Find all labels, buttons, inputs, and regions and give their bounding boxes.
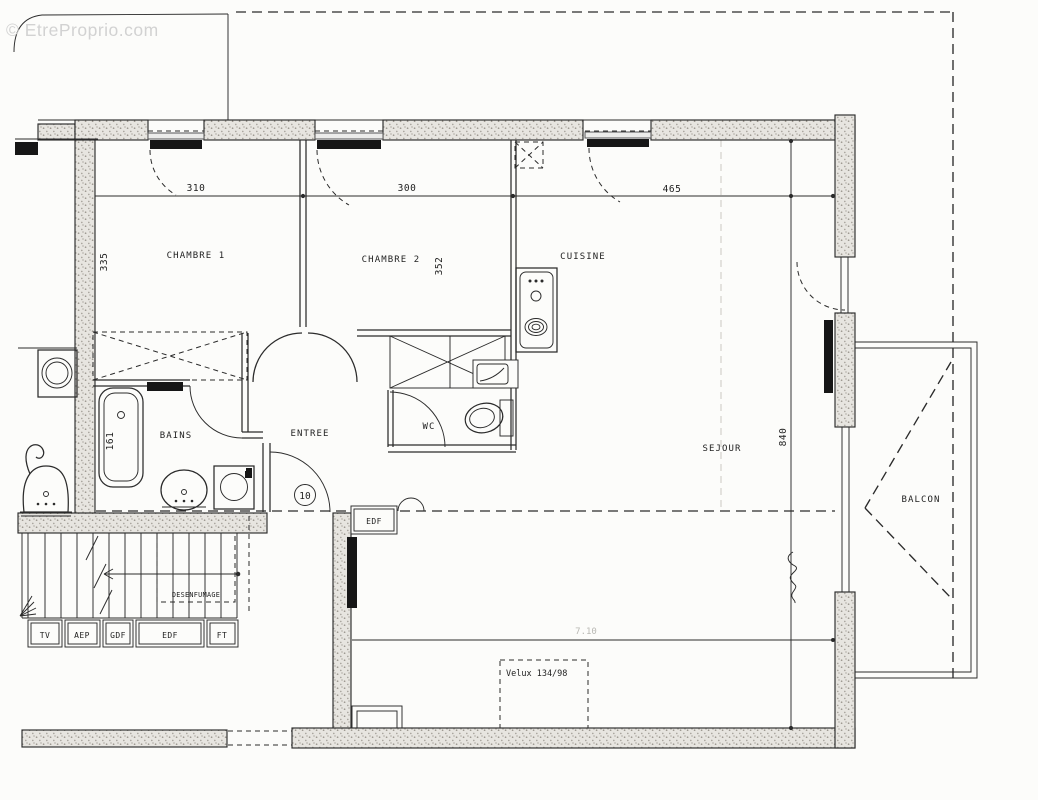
balcony-slope-marks (865, 362, 951, 598)
utility-box-gdf: GDF (103, 620, 133, 647)
stairs-break-marks (86, 536, 112, 614)
window-chambre2 (315, 133, 383, 139)
washbasin-bains (161, 470, 207, 510)
window-swing-chambre2 (317, 150, 349, 205)
hall-arch-right (308, 333, 357, 382)
balcon-label: BALCON (901, 495, 940, 505)
velux-label: Velux 134/98 (506, 669, 567, 679)
velux-zone: Velux 134/98 (500, 660, 588, 728)
utility-box-aep: AEP (65, 620, 100, 647)
door-entrance (270, 452, 330, 512)
cuisine-partition (511, 140, 516, 450)
edf-meter-label: EDF (366, 517, 382, 526)
dim-chambre1-width: 310 (187, 183, 206, 194)
stairs-direction-arrow (104, 569, 240, 579)
bottom-wall (292, 728, 855, 748)
low-window (352, 706, 402, 728)
dimension-annotations: 310 300 465 335 352 161 840 (95, 139, 835, 730)
washing-machine-bains (214, 466, 254, 509)
dim-chambre1-depth: 335 (99, 253, 110, 272)
interior-walls (93, 140, 516, 608)
window-chambre1 (148, 133, 204, 139)
window-cuisine (585, 132, 651, 138)
radiator-sejour (347, 537, 357, 608)
window-swing-cuisine (589, 148, 620, 202)
dim-sejour-width: 465 (663, 184, 682, 195)
dim-sejour-depth: 840 (778, 428, 789, 447)
french-window (841, 257, 848, 313)
wc-hand-basin (473, 360, 518, 388)
edf-meter-box: EDF (351, 506, 397, 534)
label-sejour: SEJOUR (702, 444, 741, 454)
washing-machine-exterior (18, 348, 77, 397)
desenfumage-label: DESENFUMAGE (172, 591, 220, 599)
exterior-cabinet (15, 142, 38, 155)
balcony-glazing (842, 427, 849, 592)
label-bains: BAINS (160, 431, 193, 441)
label-wc: WC (422, 422, 435, 432)
closets (93, 142, 543, 388)
utility-box-label: FT (217, 631, 227, 640)
toilet (462, 399, 513, 436)
label-entree: ENTREE (290, 429, 329, 439)
utility-box-label: TV (40, 631, 50, 640)
utility-box-edf: EDF (136, 620, 204, 647)
window-swing-chambre1 (150, 150, 176, 195)
door-number-badge: 10 (295, 485, 316, 506)
door-wc (390, 392, 445, 447)
floor-plan-drawing: 7.10 (0, 0, 1038, 800)
label-cuisine: CUISINE (560, 252, 606, 262)
label-chambre2: CHAMBRE 2 (362, 255, 421, 265)
entry-door-jamb (263, 443, 270, 512)
dim-bath-length: 161 (105, 432, 116, 451)
dim-chambre2-depth: 352 (434, 257, 445, 276)
balcony: BALCON (855, 342, 977, 678)
dim-lower-width: 7.10 (575, 627, 597, 637)
utility-box-ft: FT (207, 620, 238, 647)
lower-section-line: 7.10 (352, 627, 835, 642)
lower-annotations: EDF Velux 134/98 (351, 506, 588, 728)
kitchen-sink (516, 268, 557, 352)
cuisine-duct (515, 142, 543, 168)
utility-boxes: TV AEP GDF EDF FT (28, 620, 238, 647)
handwritten-correction (788, 552, 796, 603)
utility-box-label: GDF (110, 631, 126, 640)
smoke-vent-zone: DESENFUMAGE (157, 533, 235, 602)
floor-plan-page: 7.10 (0, 0, 1038, 800)
door-sejour-bump (398, 498, 424, 511)
utility-box-tv: TV (28, 620, 62, 647)
open-door-leaf (824, 320, 833, 393)
closet-chambre1 (93, 332, 247, 380)
door-bains (190, 386, 242, 438)
label-chambre1: CHAMBRE 1 (167, 251, 226, 261)
hall-arch-left (253, 333, 302, 382)
utility-box-label: EDF (162, 631, 178, 640)
sink-exterior (20, 445, 72, 516)
left-wall (75, 140, 95, 515)
right-wall-upper (835, 115, 855, 257)
dim-chambre2-width: 300 (398, 183, 417, 194)
watermark: © EtreProprio.com (6, 20, 159, 41)
door-number-label: 10 (299, 491, 311, 502)
radiator-bains (147, 382, 183, 391)
utility-box-label: AEP (74, 631, 90, 640)
doors (190, 386, 445, 512)
